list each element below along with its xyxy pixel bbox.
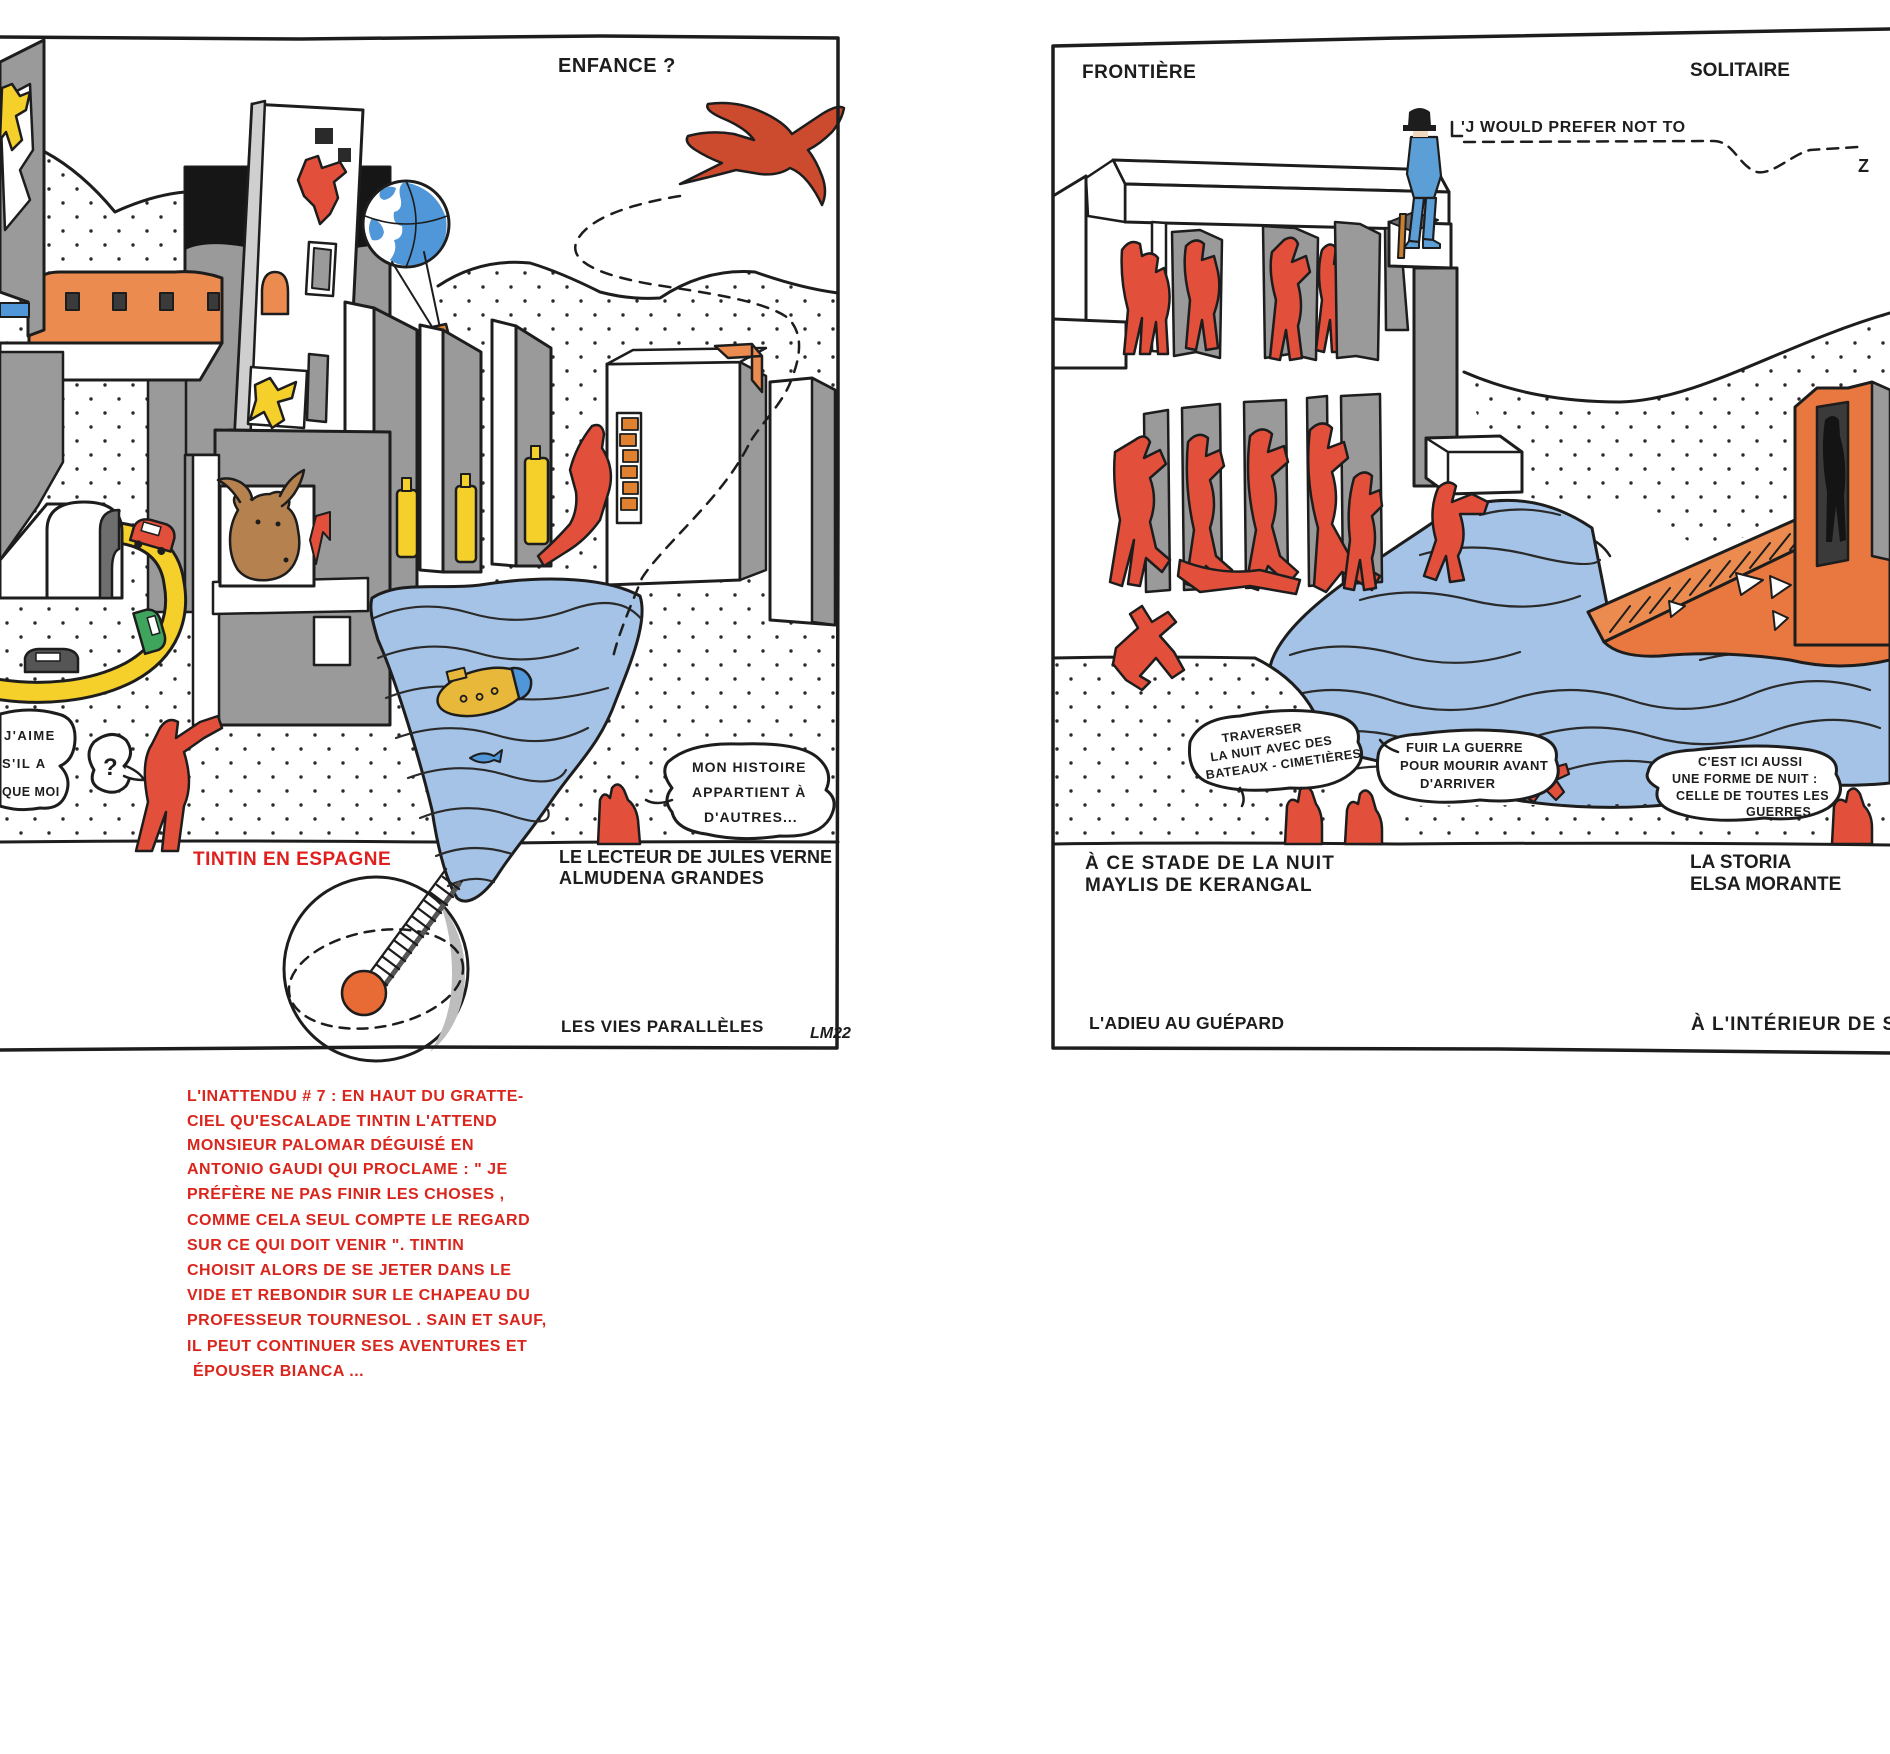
svg-text:FRONTIÈRE: FRONTIÈRE bbox=[1082, 61, 1196, 83]
svg-text:LES VIES PARALLÈLES: LES VIES PARALLÈLES bbox=[561, 1017, 764, 1036]
svg-text:VIDE ET REBONDIR SUR LE CHAPEA: VIDE ET REBONDIR SUR LE CHAPEAU DU bbox=[187, 1287, 530, 1304]
svg-text:PRÉFÈRE NE PAS FINIR LES CHO: PRÉFÈRE NE PAS FINIR LES CHOSES , bbox=[187, 1184, 505, 1203]
svg-text:CELLE DE TOUTES LES: CELLE DE TOUTES LES bbox=[1676, 789, 1829, 803]
svg-text:Z: Z bbox=[1858, 156, 1869, 176]
svg-text:SUR CE QUI DOIT VENIR ". TINTI: SUR CE QUI DOIT VENIR ". TINTIN bbox=[187, 1237, 464, 1254]
svg-text:GUERRES: GUERRES bbox=[1746, 805, 1811, 819]
svg-text:MONSIEUR PALOMAR DÉGUISÉ EN: MONSIEUR PALOMAR DÉGUISÉ EN bbox=[187, 1135, 474, 1154]
svg-text:POUR MOURIR AVANT: POUR MOURIR AVANT bbox=[1400, 758, 1548, 773]
svg-text:APPARTIENT À: APPARTIENT À bbox=[692, 784, 806, 800]
svg-text:J'AIME: J'AIME bbox=[4, 728, 56, 743]
svg-text:ANTONIO GAUDI QUI PROCLAME : ": ANTONIO GAUDI QUI PROCLAME : " JE bbox=[187, 1161, 508, 1178]
svg-text:MON HISTOIRE: MON HISTOIRE bbox=[692, 759, 806, 775]
svg-text:CIEL QU'ESCALADE TINTIN L'ATTE: CIEL QU'ESCALADE TINTIN L'ATTEND bbox=[187, 1113, 497, 1130]
svg-text:SOLITAIRE: SOLITAIRE bbox=[1690, 60, 1790, 81]
svg-text:IL PEUT CONTINUER SES AVENTURE: IL PEUT CONTINUER SES AVENTURES ET bbox=[187, 1338, 527, 1355]
svg-text:LA STORIA: LA STORIA bbox=[1690, 852, 1792, 873]
svg-text:ÉPOUSER BIANCA ...: ÉPOUSER BIANCA ... bbox=[193, 1361, 364, 1380]
svg-text:ENFANCE ?: ENFANCE ? bbox=[558, 55, 676, 77]
svg-text:LM22: LM22 bbox=[810, 1025, 851, 1042]
svg-text:ALMUDENA GRANDES: ALMUDENA GRANDES bbox=[559, 868, 764, 888]
svg-text:FUIR LA GUERRE: FUIR LA GUERRE bbox=[1406, 740, 1523, 755]
svg-text:L'INATTENDU # 7 : EN HAUT DU: L'INATTENDU # 7 : EN HAUT DU GRATTE- bbox=[187, 1088, 524, 1105]
svg-text:PROFESSEUR TOURNESOL . SAIN ET: PROFESSEUR TOURNESOL . SAIN ET SAUF, bbox=[187, 1312, 547, 1329]
svg-text:S'IL A: S'IL A bbox=[2, 756, 47, 771]
svg-text:ELSA MORANTE: ELSA MORANTE bbox=[1690, 874, 1841, 895]
svg-text:UNE FORME DE NUIT :: UNE FORME DE NUIT : bbox=[1672, 772, 1818, 786]
svg-text:CHOISIT ALORS DE SE JETER DANS: CHOISIT ALORS DE SE JETER DANS LE bbox=[187, 1262, 511, 1279]
svg-text:C'EST ICI AUSSI: C'EST ICI AUSSI bbox=[1698, 755, 1802, 769]
svg-text:TINTIN EN ESPAGNE: TINTIN EN ESPAGNE bbox=[193, 849, 391, 870]
svg-text:À L'INTÉRIEUR DE SOI: À L'INTÉRIEUR DE SOI bbox=[1691, 1013, 1890, 1035]
svg-text:LE LECTEUR DE JULES VERNE: LE LECTEUR DE JULES VERNE bbox=[559, 847, 832, 867]
svg-text:QUE MOI: QUE MOI bbox=[2, 785, 60, 799]
svg-text:'J WOULD PREFER NOT TO: 'J WOULD PREFER NOT TO bbox=[1461, 119, 1686, 136]
svg-text:D'AUTRES...: D'AUTRES... bbox=[704, 809, 798, 825]
svg-text:À CE STADE DE LA NUIT: À CE STADE DE LA NUIT bbox=[1085, 852, 1335, 874]
svg-text:D'ARRIVER: D'ARRIVER bbox=[1420, 776, 1496, 791]
svg-text:COMME CELA SEUL COMPTE LE REGA: COMME CELA SEUL COMPTE LE REGARD bbox=[187, 1212, 530, 1229]
svg-text:MAYLIS DE KERANGAL: MAYLIS DE KERANGAL bbox=[1085, 875, 1312, 896]
svg-text:?: ? bbox=[103, 754, 118, 781]
svg-text:L'ADIEU AU GUÉPARD: L'ADIEU AU GUÉPARD bbox=[1089, 1012, 1284, 1033]
